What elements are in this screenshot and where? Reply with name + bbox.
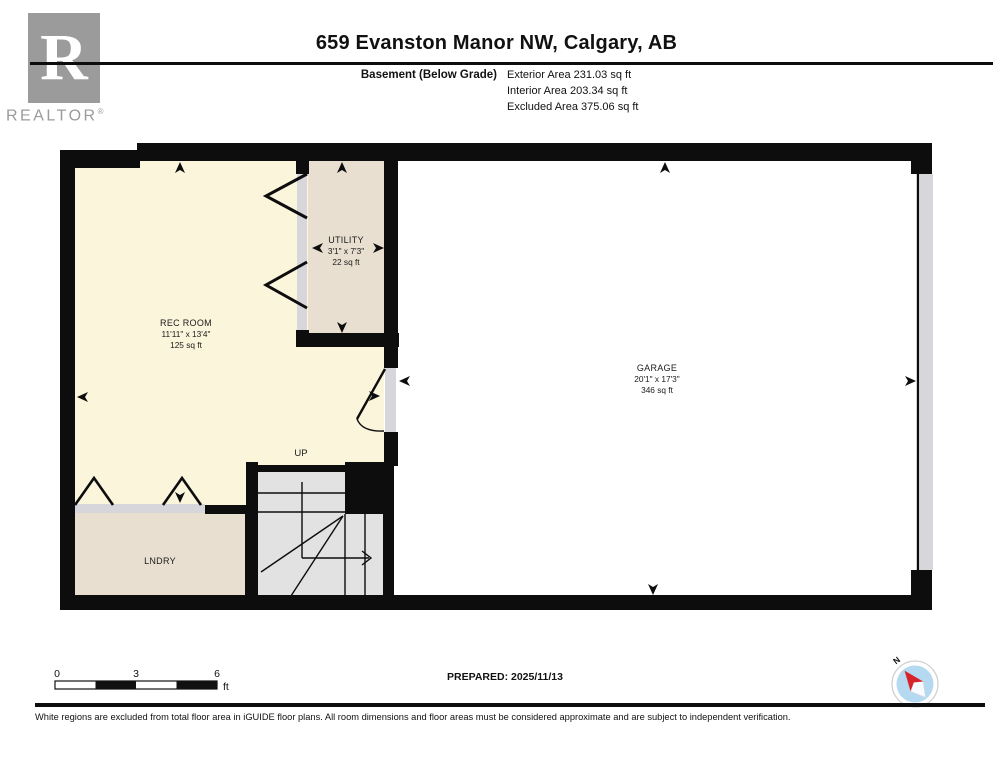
- wall-laundry-right: [245, 513, 258, 600]
- stairs-up-label: UP: [294, 448, 307, 459]
- garage-name: GARAGE: [637, 363, 677, 373]
- wall-utility-bottom: [296, 333, 399, 347]
- garage-door-panel: [920, 174, 933, 570]
- utility-area: 22 sq ft: [332, 257, 360, 267]
- laundry-name: LNDRY: [144, 556, 176, 566]
- wall-stairs-block: [345, 462, 394, 514]
- compass-north-label: N: [891, 655, 902, 667]
- wall-stairs-left-stub: [246, 462, 258, 514]
- scale-unit-label: ft: [223, 681, 229, 693]
- wall-garage-left-upper: [384, 161, 398, 368]
- wall-laundry-top-right: [205, 505, 246, 514]
- footer-divider: [35, 703, 985, 707]
- scale-bar-segment: [177, 681, 218, 689]
- stairs-lower-fill: [258, 512, 383, 598]
- floorplan-page: R REALTOR® 659 Evanston Manor NW, Calgar…: [0, 0, 993, 768]
- recroom-area: 125 sq ft: [170, 340, 203, 350]
- wall-right-bottom-stub: [911, 570, 932, 610]
- floorplan-drawing: REC ROOM 11'11" x 13'4" 125 sq ft UTILIT…: [0, 0, 993, 768]
- recroom-name: REC ROOM: [160, 318, 212, 328]
- recroom-dims: 11'11" x 13'4": [162, 329, 211, 339]
- scale-end-label: 6: [214, 668, 220, 680]
- wall-stairs-right: [383, 514, 394, 600]
- wall-utility-stub-top: [296, 161, 309, 174]
- scale-mid-label: 3: [133, 668, 139, 680]
- wall-garage-left-lower: [384, 432, 398, 466]
- wall-right-top-stub: [911, 143, 932, 174]
- wall-top: [137, 143, 932, 161]
- garage-dims: 20'1" x 17'3": [634, 374, 680, 384]
- wall-stairs-top: [258, 465, 345, 472]
- laundry-room-fill: [75, 513, 245, 597]
- disclaimer-text: White regions are excluded from total fl…: [35, 712, 935, 722]
- garage-entry-opening: [385, 368, 396, 432]
- wall-bottom: [60, 595, 932, 610]
- wall-left: [60, 150, 75, 610]
- scale-bar-segment: [96, 681, 137, 689]
- laundry-opening: [75, 504, 205, 513]
- scale-bar: 0 3 6 ft: [54, 668, 229, 693]
- garage-area: 346 sq ft: [641, 385, 674, 395]
- scale-start-label: 0: [54, 668, 60, 680]
- utility-name: UTILITY: [328, 235, 364, 245]
- utility-dims: 3'1" x 7'3": [328, 246, 364, 256]
- prepared-date: PREPARED: 2025/11/13: [447, 671, 563, 683]
